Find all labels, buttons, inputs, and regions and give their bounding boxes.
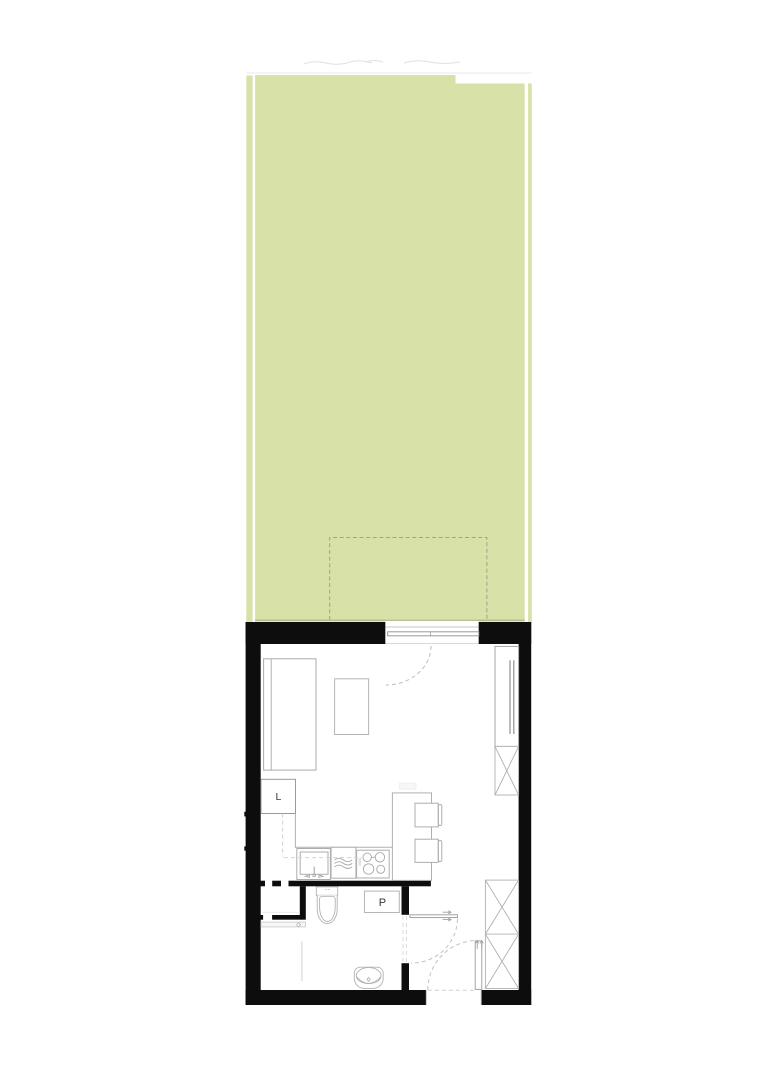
- svg-text:L: L: [276, 791, 282, 803]
- svg-text:3085: 3085: [358, 858, 362, 866]
- svg-text:P: P: [379, 897, 386, 909]
